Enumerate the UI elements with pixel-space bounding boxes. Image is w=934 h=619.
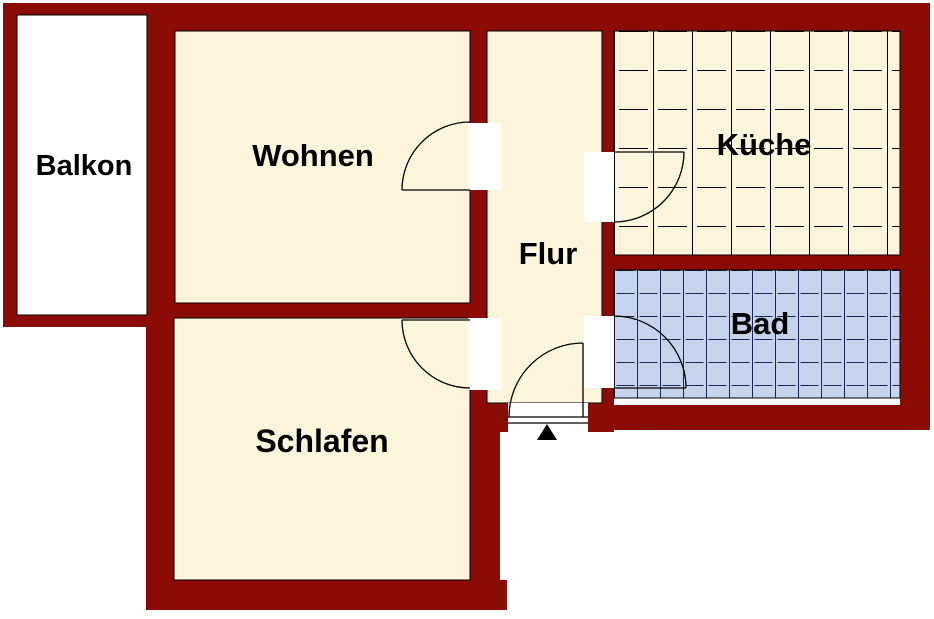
wall-kueche-bad-divider <box>602 255 900 270</box>
wall-wohnen-flur-upper <box>470 31 487 123</box>
bad-door-opening <box>584 316 614 388</box>
floor-plan-canvas: Balkon Wohnen Flur Küche Bad Schlafen <box>0 0 934 619</box>
label-balkon: Balkon <box>36 150 133 182</box>
wall-flur-kueche-upper <box>602 31 614 152</box>
wall-bottom-bad <box>588 405 930 430</box>
wall-left-balkon <box>3 3 17 327</box>
wall-bottom-schlafen <box>146 580 507 610</box>
schlafen-door-opening <box>468 318 501 390</box>
label-bad: Bad <box>731 306 790 341</box>
wall-wohnen-flur-lower <box>470 190 487 303</box>
label-flur: Flur <box>519 236 578 271</box>
label-wohnen: Wohnen <box>252 138 374 173</box>
wall-wohnen-schlafen <box>174 303 487 318</box>
wall-top-balkon <box>3 3 147 15</box>
kueche-door-opening <box>584 152 614 222</box>
wall-top-main <box>147 3 930 31</box>
wall-left-main <box>146 3 175 610</box>
wall-right-main <box>900 3 930 430</box>
wall-bottom-balkon <box>3 315 147 327</box>
wall-entrance-left-jamb <box>488 400 508 432</box>
wohnen-door-opening <box>468 123 501 190</box>
floor-plan: Balkon Wohnen Flur Küche Bad Schlafen <box>0 0 934 619</box>
label-schlafen: Schlafen <box>255 423 388 459</box>
label-kueche: Küche <box>717 127 812 162</box>
